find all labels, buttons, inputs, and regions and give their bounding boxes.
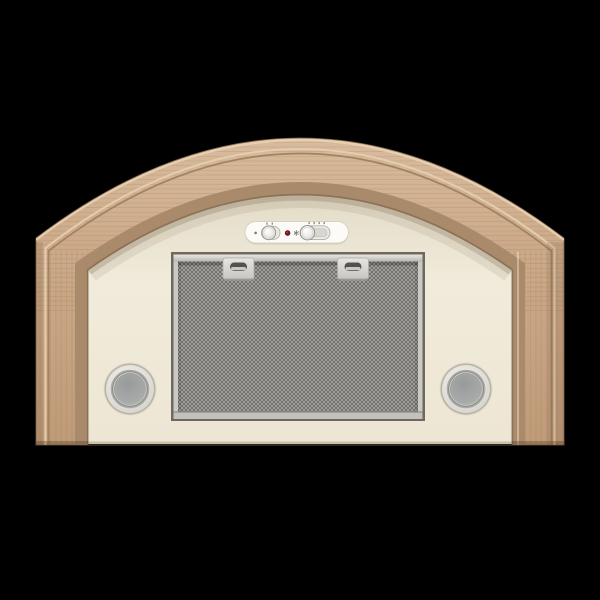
lamp-lens xyxy=(114,373,146,405)
lamp-right xyxy=(440,363,493,416)
lamp-dot-icon xyxy=(254,232,257,235)
product-image xyxy=(0,0,600,600)
lamp-lens xyxy=(450,373,482,405)
aluminium-mesh xyxy=(178,262,418,413)
filter-latch-right xyxy=(338,258,369,280)
lamp-left xyxy=(104,363,157,416)
power-indicator-led xyxy=(285,231,290,236)
control-panel xyxy=(245,222,349,245)
grease-filter xyxy=(171,252,425,421)
cooker-hood-product-photo xyxy=(0,0,600,600)
filter-latch-left xyxy=(223,258,254,280)
